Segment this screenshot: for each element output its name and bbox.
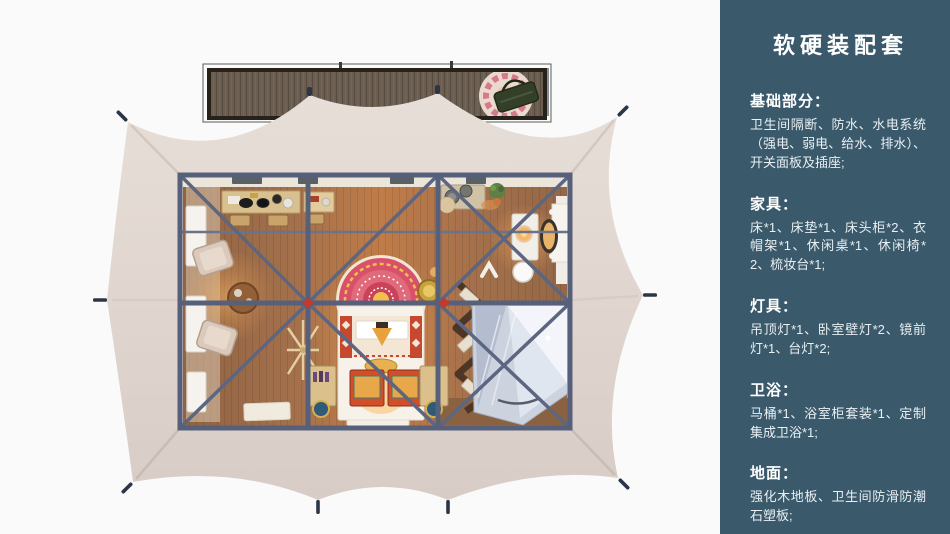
stake — [446, 500, 450, 514]
canopy-clip — [435, 85, 440, 94]
deck-post — [339, 62, 342, 69]
section-heading: 地面： — [750, 462, 926, 483]
hat — [239, 198, 253, 208]
console-desk — [222, 191, 334, 226]
side-table — [228, 283, 258, 313]
vent — [232, 177, 262, 184]
section-heading: 灯具： — [750, 295, 926, 316]
section-heading: 基础部分： — [750, 90, 926, 111]
chest-panel — [354, 376, 380, 398]
mirror-glass — [543, 223, 555, 250]
bottle — [319, 371, 323, 382]
section-heading: 家具： — [750, 193, 926, 214]
deck-post — [450, 61, 453, 68]
section-body: 床*1、床垫*1、床头柜*2、衣帽架*1、休闲桌*1、休闲椅*2、梳妆台*1; — [750, 219, 926, 276]
section-lighting: 灯具： 吊顶灯*1、卧室壁灯*2、镜前灯*1、台灯*2; — [750, 295, 926, 359]
section-heading: 卫浴： — [750, 379, 926, 400]
section-floor: 地面： 强化木地板、卫生间防滑防潮石塑板; — [750, 462, 926, 526]
shower-handle — [546, 336, 551, 341]
stake — [643, 293, 657, 297]
section-body: 强化木地板、卫生间防滑防潮石塑板; — [750, 488, 926, 526]
section-bath: 卫浴： 马桶*1、浴室柜套装*1、定制集成卫浴*1; — [750, 379, 926, 443]
cloth — [228, 196, 240, 204]
desk-chair — [230, 215, 250, 226]
plant-pot — [493, 198, 501, 206]
drum-stool — [313, 401, 329, 417]
stake — [316, 500, 320, 514]
room — [180, 175, 570, 428]
desk-chair — [268, 215, 288, 226]
plate — [322, 198, 330, 206]
bottle — [325, 372, 329, 382]
page: 软硬装配套 基础部分： 卫生间隔断、防水、水电系统（强电、弱电、给水、排水）、开… — [0, 0, 950, 534]
left-wall-windows — [186, 206, 206, 412]
canopy-clip — [307, 87, 312, 96]
info-panel: 软硬装配套 基础部分： 卫生间隔断、防水、水电系统（强电、弱电、给水、排水）、开… — [720, 0, 950, 534]
vent — [298, 177, 318, 184]
jute-mat — [439, 197, 455, 213]
bottle — [313, 372, 317, 382]
plate — [283, 198, 293, 208]
section-basics: 基础部分： 卫生间隔断、防水、水电系统（强电、弱电、给水、排水）、开关面板及插座… — [750, 90, 926, 173]
stake — [93, 298, 107, 302]
section-body: 马桶*1、浴室柜套装*1、定制集成卫浴*1; — [750, 405, 926, 443]
vent — [390, 177, 414, 184]
vent — [466, 177, 486, 184]
basin — [460, 185, 472, 197]
section-body: 吊顶灯*1、卧室壁灯*2、镜前灯*1、台灯*2; — [750, 321, 926, 359]
hat — [257, 199, 269, 208]
kettle — [273, 195, 282, 204]
panel-title: 软硬装配套 — [750, 28, 926, 60]
red-box — [310, 196, 319, 202]
door-mat — [244, 402, 291, 421]
section-furniture: 家具： 床*1、床垫*1、床头柜*2、衣帽架*1、休闲桌*1、休闲椅*2、梳妆台… — [750, 193, 926, 276]
teacup — [234, 289, 242, 297]
floorplan-render — [0, 0, 722, 534]
section-body: 卫生间隔断、防水、水电系统（强电、弱电、给水、排水）、开关面板及插座; — [750, 116, 926, 173]
gold-box — [250, 193, 258, 198]
